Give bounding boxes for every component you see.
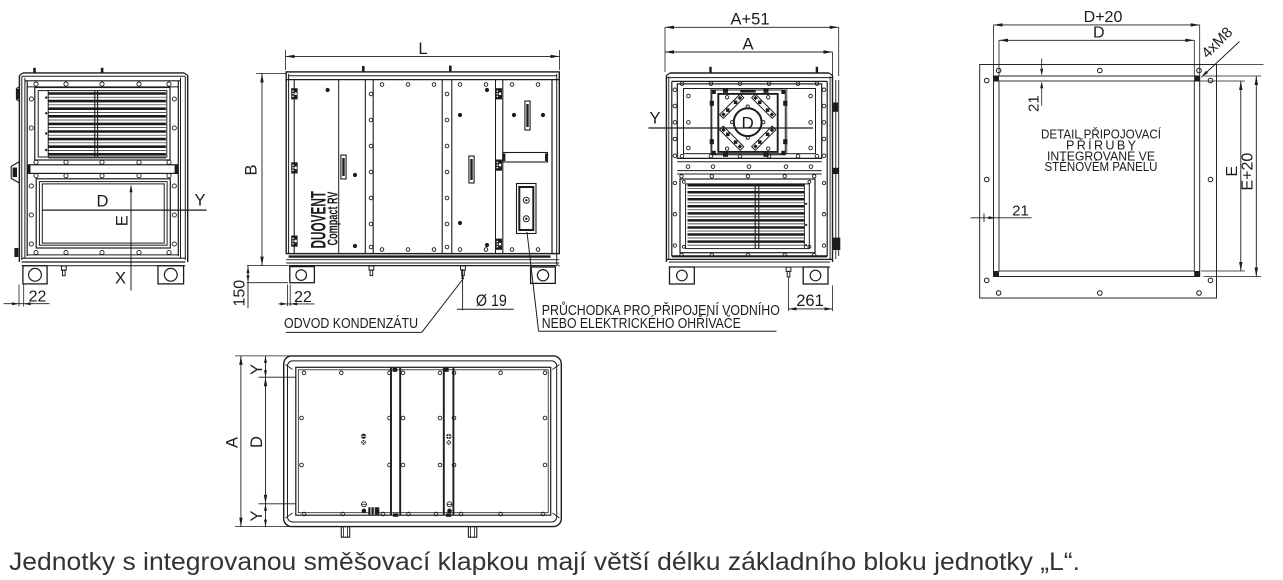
svg-text:21: 21 [1012,203,1029,220]
svg-text:A: A [742,35,753,53]
svg-text:E+20: E+20 [1240,153,1257,191]
svg-text:Y: Y [649,110,660,128]
svg-text:NEBO ELEKTRICKÉHO OHŘÍVAČE: NEBO ELEKTRICKÉHO OHŘÍVAČE [542,315,741,332]
svg-text:22: 22 [29,289,47,306]
svg-text:Y: Y [194,192,205,210]
svg-text:L: L [418,40,427,58]
svg-text:D: D [97,193,109,211]
svg-text:Y: Y [248,364,266,375]
svg-text:22: 22 [294,289,312,306]
svg-text:E: E [114,215,132,226]
svg-text:A: A [223,437,241,448]
svg-text:D: D [248,436,266,448]
svg-text:261: 261 [796,292,824,310]
svg-text:A+51: A+51 [731,11,770,29]
svg-text:STĚNOVÉM PANELU: STĚNOVÉM PANELU [1045,159,1158,174]
svg-text:Compact RV: Compact RV [326,191,342,245]
svg-text:X: X [115,270,126,288]
svg-text:150: 150 [232,280,249,307]
svg-text:D: D [742,113,754,132]
svg-text:Y: Y [248,510,266,521]
svg-text:Ø 19: Ø 19 [476,292,507,310]
svg-text:Jednotky s integrovanou směšov: Jednotky s integrovanou směšovací klapko… [9,548,1080,576]
svg-text:ODVOD KONDENZÁTU: ODVOD KONDENZÁTU [284,315,418,332]
svg-text:E: E [1224,166,1241,177]
svg-text:B: B [243,164,261,175]
svg-text:21: 21 [1026,95,1043,112]
svg-text:D: D [1093,25,1105,42]
